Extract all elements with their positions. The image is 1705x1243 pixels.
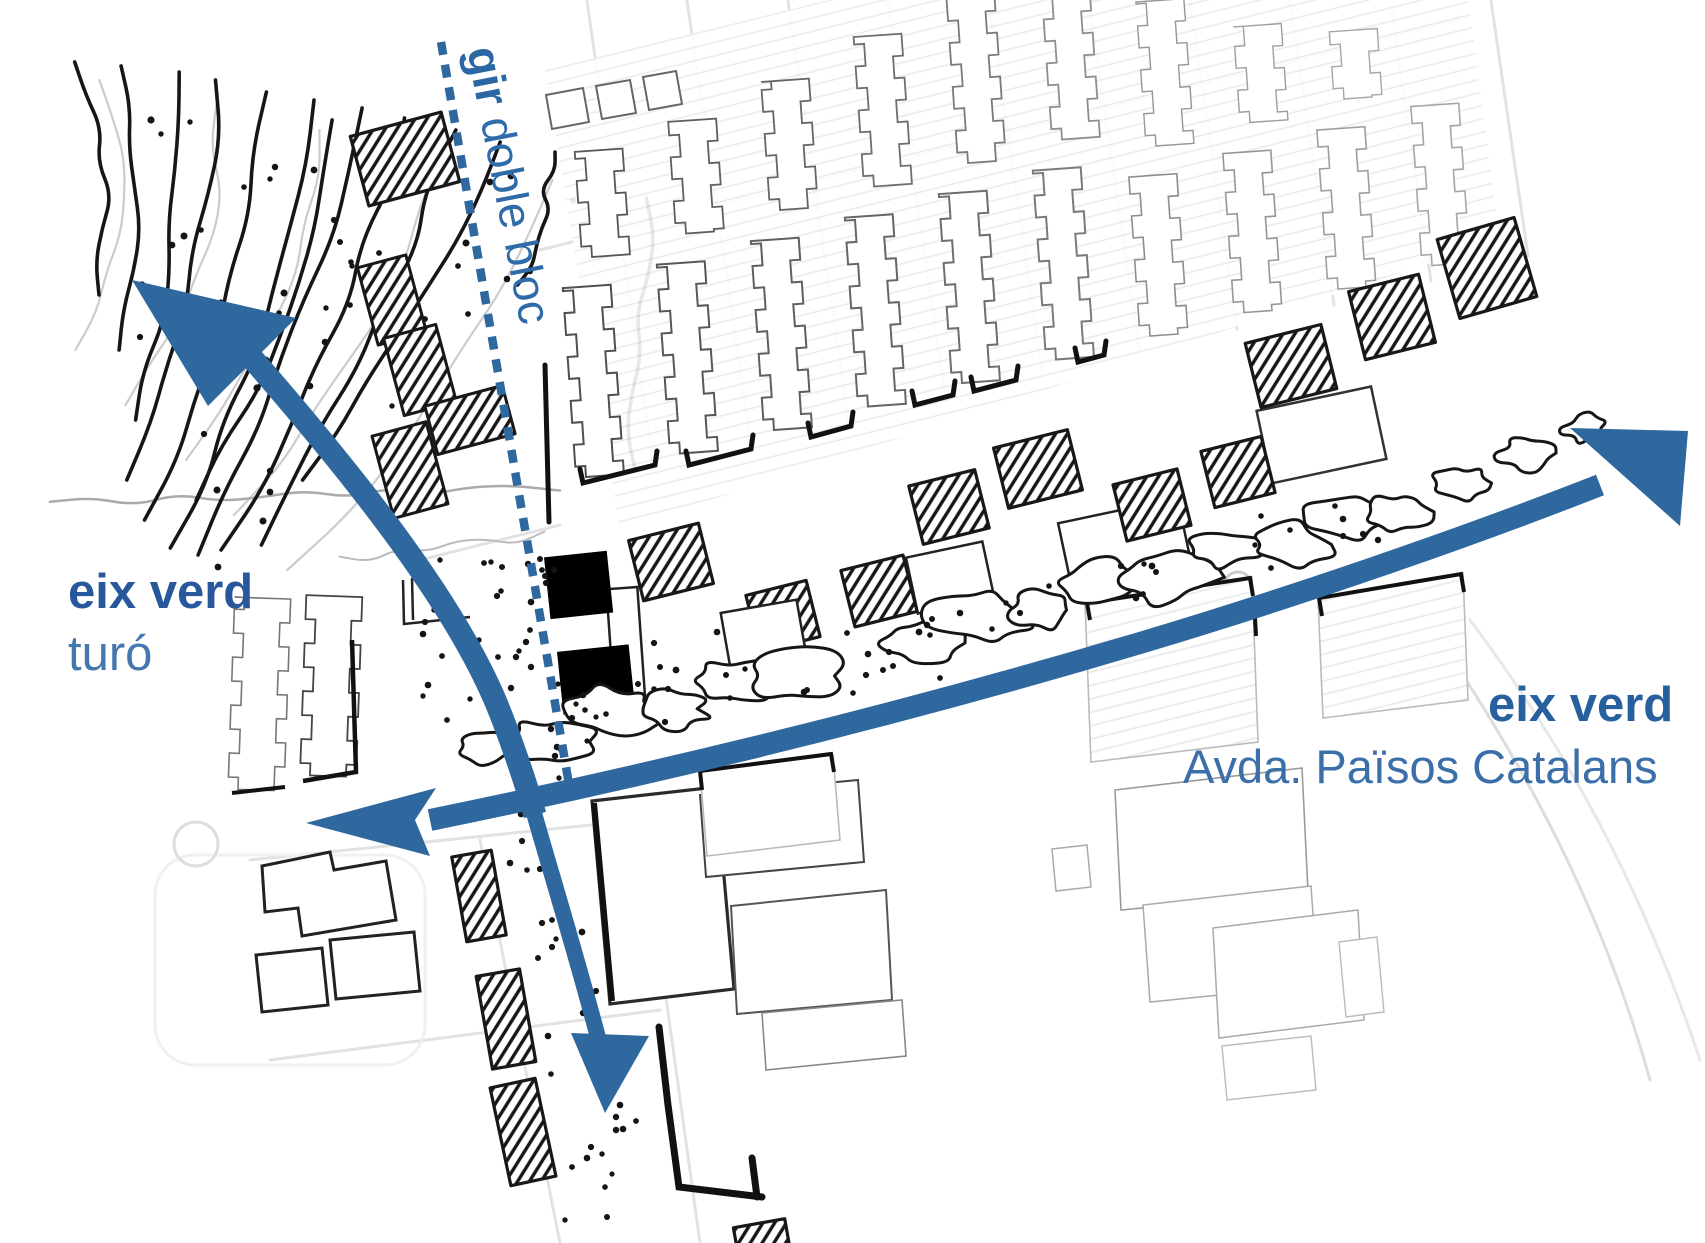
svg-text:turó: turó — [68, 627, 152, 681]
svg-text:eix verd: eix verd — [68, 565, 253, 619]
svg-text:eix verd: eix verd — [1488, 678, 1673, 732]
svg-text:Avda. Països Catalans: Avda. Països Catalans — [1183, 740, 1658, 793]
